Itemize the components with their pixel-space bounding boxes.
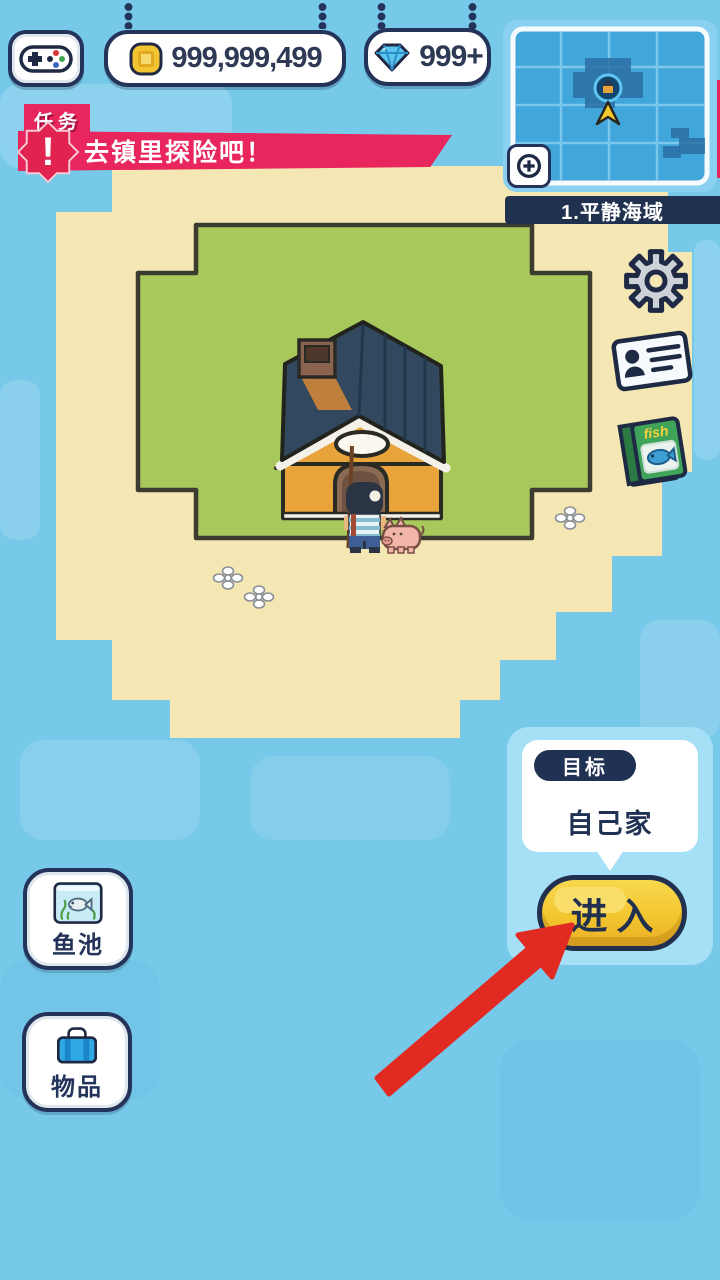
gear-icon <box>618 243 694 319</box>
id-card-icon <box>610 328 694 394</box>
coin-count: 999,999,499 <box>171 42 321 75</box>
fish-book-icon: fish <box>612 412 692 492</box>
game-screen: 999,999,499 999+ 任务 去镇里探险吧！ ! <box>0 0 720 1280</box>
chain <box>124 2 133 29</box>
fish-pond-label: 鱼池 <box>52 925 104 960</box>
minimap[interactable] <box>503 20 717 192</box>
exclamation-mark: ! <box>14 118 82 186</box>
items-label: 物品 <box>51 1067 103 1102</box>
items-button[interactable]: 物品 <box>22 1012 132 1112</box>
chain <box>468 2 477 29</box>
zoom-in-icon <box>512 149 546 183</box>
coin-counter[interactable]: 999,999,499 <box>104 30 346 87</box>
gamepad-icon <box>18 41 74 77</box>
suitcase-icon <box>42 1026 112 1066</box>
aquarium-icon <box>45 882 111 924</box>
enter-button-label: 进入 <box>562 886 663 940</box>
gem-icon <box>372 41 412 73</box>
area-name-label: 1.平静海域 <box>505 196 720 224</box>
goal-target: 自己家 <box>522 802 698 841</box>
gem-counter[interactable]: 999+ <box>364 28 491 86</box>
fish-book-button[interactable]: fish <box>612 412 692 492</box>
task-banner[interactable]: 去镇里探险吧！ <box>18 131 452 171</box>
goal-bubble: 目标 自己家 <box>522 740 698 852</box>
map-zoom-button[interactable] <box>507 144 551 188</box>
goal-label: 目标 <box>534 750 636 781</box>
fish-pond-button[interactable]: 鱼池 <box>23 868 133 970</box>
enter-button[interactable]: 进入 <box>537 875 687 951</box>
task-exclamation-badge: ! <box>14 118 82 186</box>
menu-button[interactable] <box>8 30 84 87</box>
chain <box>318 2 327 29</box>
goal-panel: 目标 自己家 进入 <box>507 727 713 965</box>
chain <box>377 2 386 29</box>
gem-count: 999+ <box>419 40 483 74</box>
profile-button[interactable] <box>610 328 694 394</box>
settings-button[interactable] <box>618 243 694 319</box>
coin-icon <box>128 41 164 77</box>
